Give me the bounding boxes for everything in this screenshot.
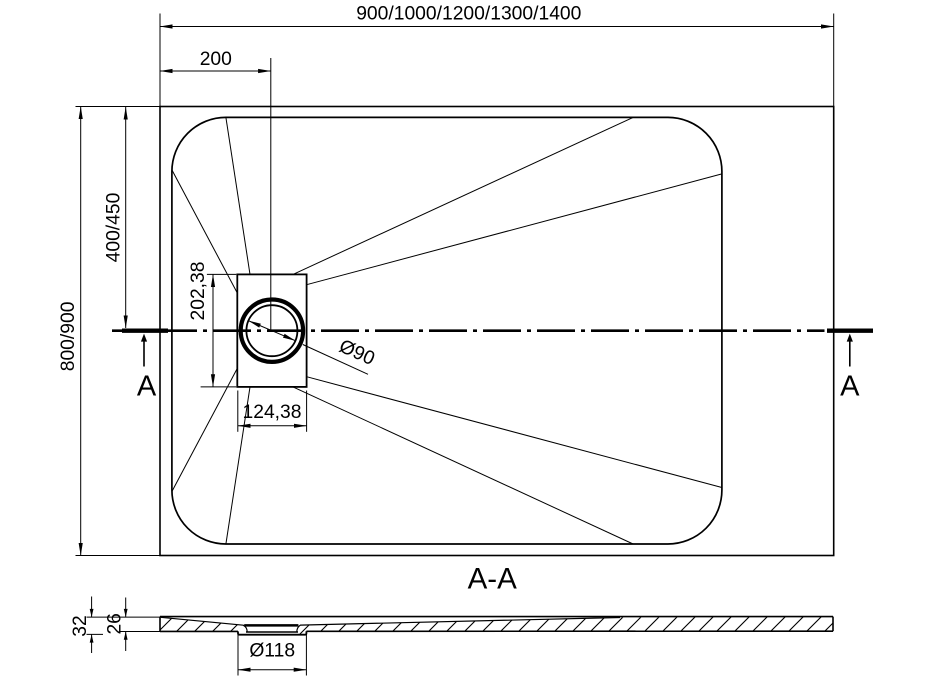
svg-text:124,38: 124,38	[243, 402, 302, 423]
svg-text:400/450: 400/450	[103, 193, 124, 263]
svg-text:Ø90: Ø90	[336, 336, 378, 370]
svg-text:Ø118: Ø118	[249, 640, 295, 661]
svg-text:A: A	[840, 370, 860, 402]
svg-text:900/1000/1200/1300/1400: 900/1000/1200/1300/1400	[356, 4, 581, 25]
svg-text:A: A	[137, 370, 157, 402]
svg-text:26: 26	[104, 613, 125, 634]
svg-text:800/900: 800/900	[58, 302, 79, 372]
svg-text:A-A: A-A	[468, 563, 518, 596]
svg-text:200: 200	[200, 49, 232, 70]
svg-text:202,38: 202,38	[188, 262, 209, 321]
svg-text:32: 32	[70, 615, 91, 636]
